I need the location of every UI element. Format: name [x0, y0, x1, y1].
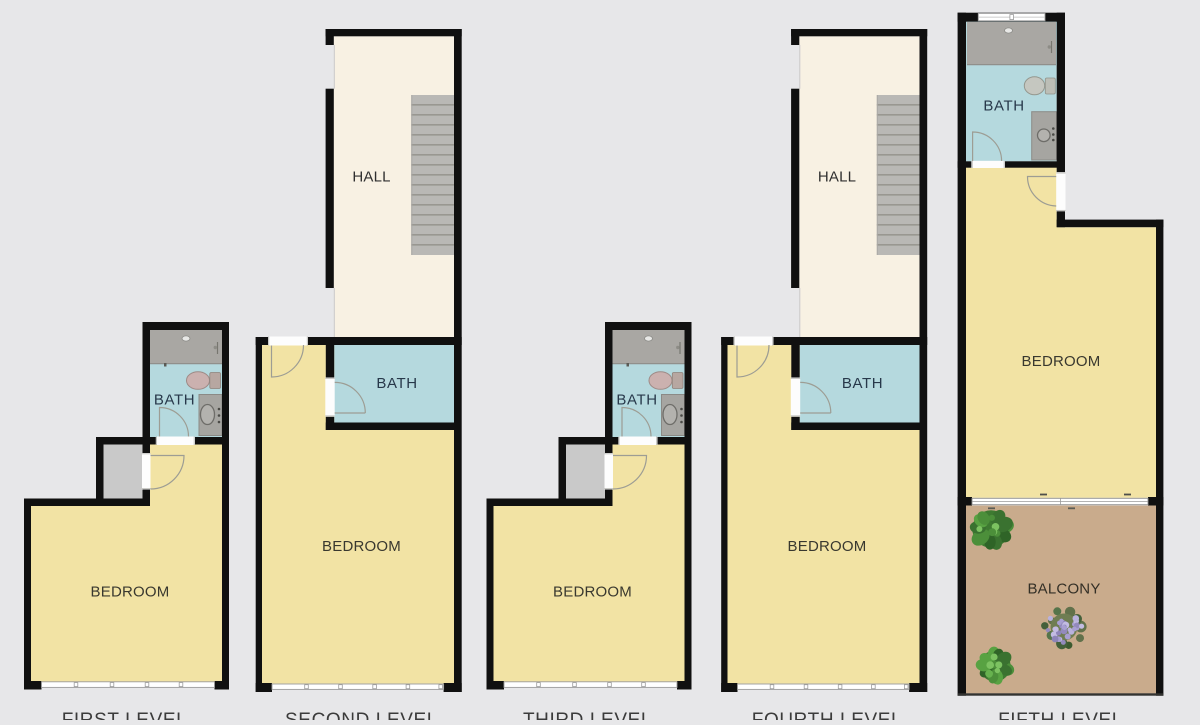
svg-text:BALCONY: BALCONY	[1027, 581, 1100, 598]
svg-text:BATH: BATH	[616, 392, 657, 409]
svg-text:THIRD LEVEL: THIRD LEVEL	[523, 710, 652, 720]
svg-text:BEDROOM: BEDROOM	[322, 538, 401, 555]
svg-text:BEDROOM: BEDROOM	[91, 584, 170, 601]
svg-text:BEDROOM: BEDROOM	[788, 538, 867, 555]
svg-text:BEDROOM: BEDROOM	[1022, 353, 1101, 370]
svg-text:SECOND LEVEL: SECOND LEVEL	[285, 710, 438, 720]
svg-text:BATH: BATH	[983, 98, 1024, 115]
svg-text:BATH: BATH	[154, 392, 195, 409]
svg-text:FIFTH LEVEL: FIFTH LEVEL	[998, 710, 1123, 720]
svg-text:FOURTH LEVEL: FOURTH LEVEL	[752, 710, 902, 720]
svg-text:BEDROOM: BEDROOM	[553, 584, 632, 601]
svg-text:HALL: HALL	[352, 169, 390, 186]
svg-text:BATH: BATH	[842, 375, 883, 392]
svg-text:BATH: BATH	[376, 375, 417, 392]
svg-text:HALL: HALL	[818, 169, 856, 186]
svg-text:FIRST LEVEL: FIRST LEVEL	[62, 710, 188, 720]
